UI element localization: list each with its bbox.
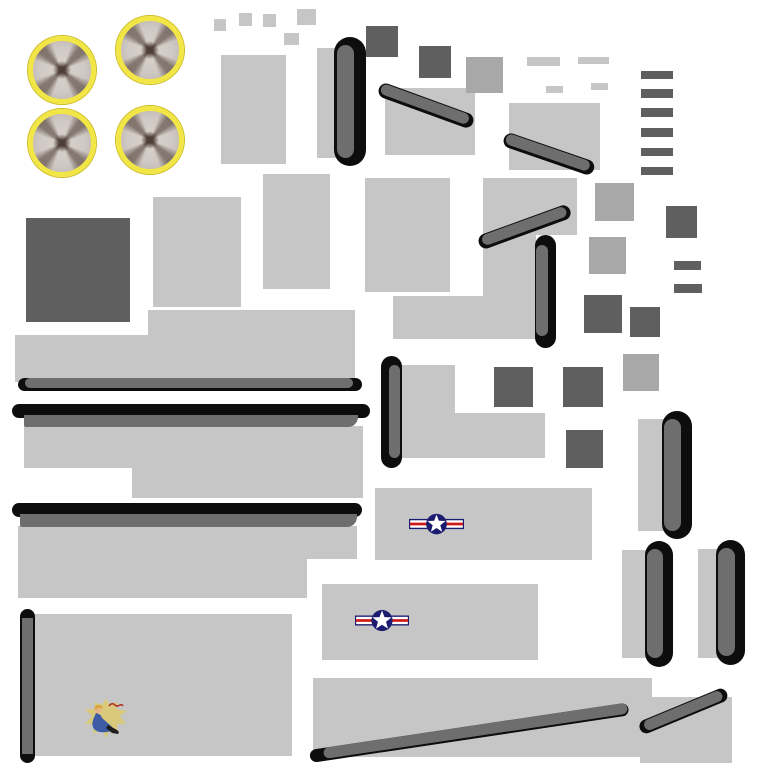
wing-skin-3-body (18, 526, 357, 559)
propeller-disc-2 (116, 16, 184, 84)
hatch-patch-1 (214, 19, 226, 31)
trim-dash-4 (591, 83, 608, 90)
stabilizer-edge-2 (645, 541, 673, 667)
vent-slat-6 (641, 167, 673, 175)
propeller-disc-3 (28, 109, 96, 177)
flap-panel-step (402, 365, 455, 413)
vent-slat-5 (641, 148, 673, 156)
wing-root-rib-edge (535, 235, 556, 348)
medium-panel-3 (589, 237, 626, 274)
fuselage-band-insignia-1 (375, 488, 592, 560)
vent-slat-7 (674, 261, 701, 270)
usaf-star-insignia-2 (355, 608, 409, 633)
nose-panel (221, 55, 286, 164)
vent-slat-3 (641, 108, 673, 117)
flap-panel-body (402, 413, 545, 458)
vent-slat-1 (641, 71, 673, 79)
flap-leading-edge (381, 356, 402, 468)
medium-panel-2 (595, 183, 634, 221)
wing-1-strip-core (25, 378, 353, 388)
wing-3-edge-core (20, 514, 357, 527)
trim-dash-2 (546, 86, 563, 93)
dark-panel-6 (494, 367, 533, 407)
stabilizer-edge-3 (716, 540, 745, 665)
wing-root-panel-base (393, 296, 536, 339)
dark-panel-8 (566, 430, 603, 468)
wing-skin-2-body (24, 426, 363, 468)
dark-panel-1 (366, 26, 398, 57)
fuselage-panel-b (263, 174, 330, 289)
trim-dash-1 (527, 57, 560, 66)
flap-edge-core (389, 365, 400, 458)
dark-panel-5 (630, 307, 660, 337)
wing-skin-1-step (148, 310, 355, 337)
stabilizer-edge-2-core (647, 549, 663, 658)
fuselage-panel-c (365, 178, 450, 292)
wing-skin-3-lower (18, 559, 307, 598)
wing-skin-2-lower (132, 468, 363, 498)
vent-slat-2 (641, 89, 673, 98)
nose-panel-edge (20, 609, 35, 763)
vent-slat-8 (674, 284, 702, 293)
trim-dash-3 (578, 57, 609, 64)
propeller-disc-4 (116, 106, 184, 174)
stabilizer-edge-3-core (718, 548, 735, 656)
hatch-patch-5 (284, 33, 299, 45)
dark-panel-2 (419, 46, 451, 78)
cowl-leading-edge (334, 37, 366, 166)
usaf-star-insignia-1 (409, 512, 464, 536)
dark-panel-4 (584, 295, 622, 333)
vent-slat-4 (641, 128, 673, 137)
propeller-disc-1 (28, 36, 96, 104)
medium-panel-4 (623, 354, 659, 391)
wing-root-rib-core (536, 245, 548, 336)
fuselage-panel-a (153, 197, 241, 307)
medium-panel-1 (466, 57, 503, 93)
stabilizer-edge-1-core (664, 419, 681, 531)
tire-tread-panel (26, 218, 130, 322)
nose-art-pinup-icon (84, 698, 129, 739)
dark-panel-7 (563, 367, 603, 407)
texture-atlas-sheet (0, 0, 768, 768)
hatch-patch-3 (263, 14, 276, 27)
hatch-patch-4 (297, 9, 316, 25)
wing-1-trailing-strip (18, 378, 362, 391)
nose-art-panel (33, 614, 292, 756)
dark-panel-3 (666, 206, 697, 238)
wing-2-edge-core (24, 415, 358, 427)
wing-skin-1-body (15, 335, 355, 382)
stabilizer-edge-1 (662, 411, 692, 539)
cowl-edge-core (337, 45, 354, 158)
hatch-patch-2 (239, 13, 252, 26)
nose-panel-edge-core (22, 618, 33, 754)
